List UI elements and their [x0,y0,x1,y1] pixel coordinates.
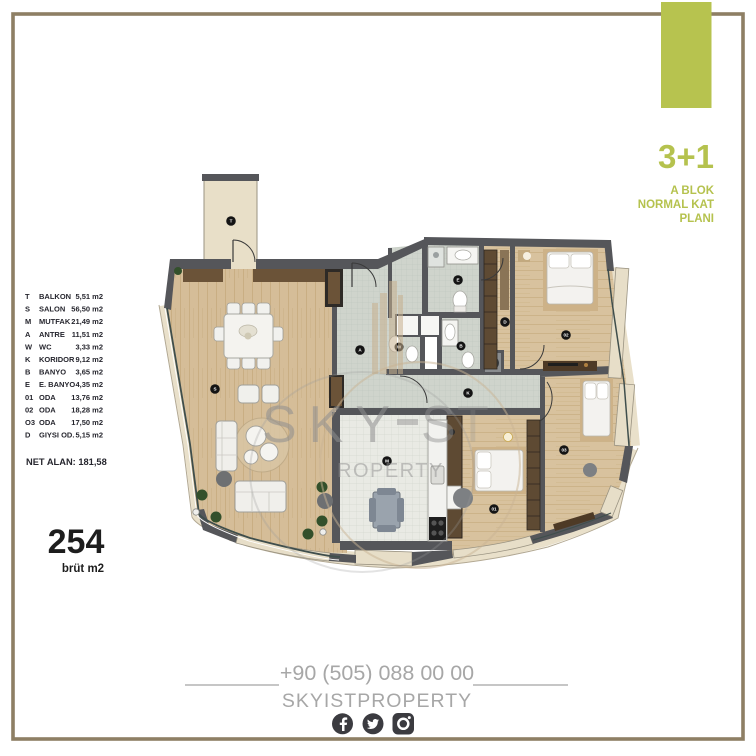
svg-text:brüt m2: brüt m2 [62,563,104,575]
svg-text:01: 01 [491,507,497,512]
svg-text:ODA: ODA [39,405,56,414]
svg-text:3+1: 3+1 [658,138,714,175]
svg-text:S: S [421,396,456,454]
svg-text:3,65 m2: 3,65 m2 [75,368,103,377]
svg-text:254: 254 [48,523,105,561]
svg-text:E: E [25,380,30,389]
svg-text:D: D [25,431,31,440]
svg-text:ANTRE: ANTRE [39,330,65,339]
svg-text:PLANI: PLANI [680,213,715,225]
svg-text:ROPERTY: ROPERTY [337,460,444,482]
svg-text:WC: WC [39,342,52,351]
svg-text:BALKON: BALKON [39,292,71,301]
svg-text:GIYSI OD.: GIYSI OD. [39,431,74,440]
svg-text:T: T [230,219,233,224]
svg-text:A BLOK: A BLOK [670,185,714,197]
svg-text:3,33 m2: 3,33 m2 [75,342,103,351]
svg-text:T: T [457,396,489,454]
svg-text:18,28 m2: 18,28 m2 [71,405,103,414]
svg-text:03: 03 [561,448,567,453]
svg-text:W: W [25,342,33,351]
svg-text:56,50 m2: 56,50 m2 [71,305,103,314]
svg-text:SKY: SKY [262,396,402,454]
svg-text:+90 (505) 088 00 00: +90 (505) 088 00 00 [280,661,474,685]
svg-text:02: 02 [25,405,33,414]
svg-text:O3: O3 [25,418,35,427]
svg-text:5,15 m2: 5,15 m2 [75,431,103,440]
svg-text:E: E [456,278,459,283]
svg-text:S: S [213,387,216,392]
svg-text:A: A [25,330,31,339]
svg-text:SKYISTPROPERTY: SKYISTPROPERTY [282,690,472,712]
svg-text:K: K [25,355,31,364]
svg-text:11,51 m2: 11,51 m2 [72,330,103,339]
svg-text:4,35 m2: 4,35 m2 [75,380,103,389]
svg-text:MUTFAK: MUTFAK [39,317,71,326]
svg-text:5,51 m2: 5,51 m2 [75,292,103,301]
svg-text:01: 01 [25,393,33,402]
svg-text:ODA: ODA [39,393,56,402]
svg-text:T: T [25,292,30,301]
svg-text:ODA: ODA [39,418,56,427]
svg-text:13,76 m2: 13,76 m2 [71,393,103,402]
svg-text:S: S [25,305,30,314]
svg-text:NORMAL KAT: NORMAL KAT [638,199,714,211]
svg-text:17,50 m2: 17,50 m2 [71,418,103,427]
svg-text:9,12 m2: 9,12 m2 [75,355,103,364]
svg-text:SALON: SALON [39,305,65,314]
svg-text:BANYO: BANYO [39,368,66,377]
svg-text:02: 02 [563,333,569,338]
svg-text:21,49 m2: 21,49 m2 [71,317,103,326]
svg-text:KORIDOR: KORIDOR [39,355,75,364]
svg-text:B: B [25,368,31,377]
svg-text:M: M [25,317,31,326]
svg-text:NET ALAN: 181,58: NET ALAN: 181,58 [26,457,107,467]
svg-text:E. BANYO: E. BANYO [39,380,75,389]
